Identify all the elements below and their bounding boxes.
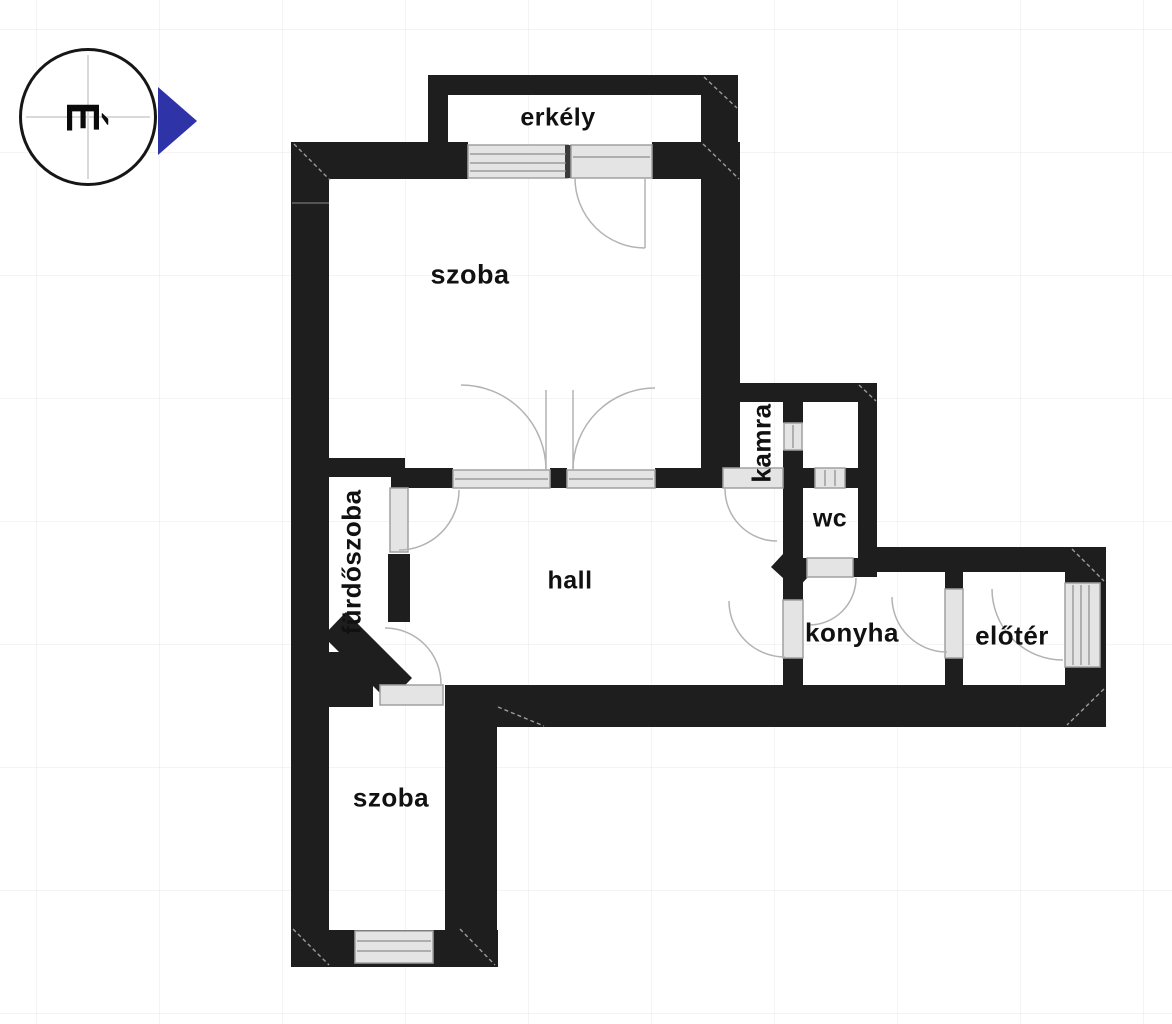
- label-szoba-top: szoba: [430, 260, 509, 291]
- wall-block-right: [858, 383, 877, 560]
- door-entrance: [1065, 583, 1100, 667]
- wall-entry-top: [1065, 560, 1106, 585]
- door-szoba2: [380, 685, 443, 705]
- wall-kamra-sep-lower: [783, 450, 803, 470]
- label-wc: wc: [813, 505, 847, 534]
- wall-door-mullion: [550, 468, 567, 488]
- wall-entry-bottom: [1065, 667, 1106, 727]
- swing-double-door-right: [573, 388, 655, 470]
- swing-konyha-door: [729, 601, 785, 657]
- window-shaft-wc: [815, 468, 845, 488]
- corner-seams: [293, 77, 1104, 965]
- label-szoba-bottom: szoba: [353, 783, 429, 814]
- wall-kamra-sep-upper: [783, 402, 803, 423]
- door-furdoszoba: [390, 488, 408, 552]
- wall-hall-top-stub: [391, 468, 453, 488]
- door-konyha-eloter: [945, 589, 963, 658]
- label-erkely: erkély: [520, 104, 595, 133]
- floor-plan-page: { "title": "apartment-floor-plan", "comp…: [0, 0, 1172, 1024]
- window-szoba2: [355, 931, 433, 963]
- wall-hall-top-right: [655, 468, 725, 488]
- walls: [291, 75, 1106, 967]
- wall-szoba-right: [701, 142, 740, 488]
- wall-konyha-sep-lower: [945, 658, 963, 688]
- wall-szoba2-right: [445, 685, 497, 967]
- swing-balcony-door: [575, 178, 645, 248]
- door-wc: [807, 558, 853, 577]
- swing-kamra-door: [725, 489, 777, 541]
- wall-furdoszoba-right: [388, 554, 410, 622]
- jamb-balcony: [565, 145, 571, 178]
- label-hall: hall: [547, 567, 592, 596]
- swing-konyha-eloter-door: [892, 597, 947, 652]
- door-balcony: [571, 145, 652, 178]
- wall-outer-left: [291, 142, 329, 967]
- wall-shaft-bottom-left: [783, 468, 815, 488]
- compass-rose: É: [19, 48, 157, 186]
- wall-balcony-right: [701, 75, 738, 145]
- swing-double-door-left: [461, 385, 546, 470]
- label-kamra: kamra: [747, 403, 778, 482]
- label-furdoszoba: fürdőszoba: [337, 489, 368, 634]
- wall-shaft-bottom-right: [845, 468, 858, 488]
- wall-bottom-band: [445, 685, 1065, 727]
- label-eloter: előtér: [975, 621, 1049, 652]
- label-konyha: konyha: [805, 618, 899, 649]
- compass-north-letter: É: [60, 102, 106, 133]
- door-konyha: [783, 600, 803, 658]
- north-arrow-icon: [158, 87, 197, 155]
- wall-konyha-sep-upper: [945, 565, 963, 589]
- wall-balcony-top: [428, 75, 738, 95]
- wall-kamra-top: [740, 383, 877, 402]
- window-balcony: [468, 145, 568, 178]
